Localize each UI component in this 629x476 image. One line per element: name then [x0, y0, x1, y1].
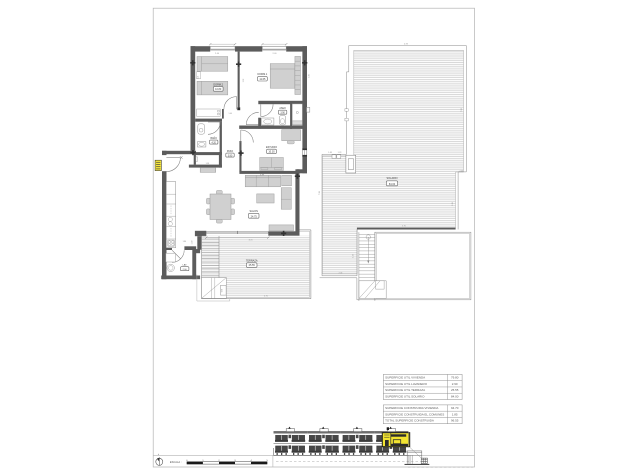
svg-text:TERRAZA: TERRAZA — [246, 259, 258, 262]
svg-text:SUPERFICIE CONSTRUIDA VIVIENDA: SUPERFICIE CONSTRUIDA VIVIENDA — [385, 406, 438, 410]
svg-text:2.90: 2.90 — [452, 382, 458, 386]
svg-text:96.55: 96.55 — [451, 419, 459, 423]
svg-text:SUPERFICIE UTIL LAVADERO: SUPERFICIE UTIL LAVADERO — [385, 382, 428, 386]
svg-text:2.33: 2.33 — [352, 254, 354, 258]
svg-text:3.30: 3.30 — [309, 74, 311, 78]
svg-text:25.55: 25.55 — [451, 388, 459, 392]
svg-text:1.35: 1.35 — [198, 76, 200, 79]
svg-text:3.80: 3.80 — [228, 155, 233, 157]
svg-text:24.75: 24.75 — [251, 215, 258, 218]
svg-text:2.04: 2.04 — [339, 272, 343, 274]
svg-text:SOLARIO: SOLARIO — [386, 177, 397, 180]
svg-text:1.48: 1.48 — [328, 152, 332, 154]
svg-text:0.90: 0.90 — [221, 289, 223, 292]
svg-text:4.75: 4.75 — [264, 296, 268, 298]
svg-text:SUPERFICIE UTIL TERRAZA: SUPERFICIE UTIL TERRAZA — [385, 388, 425, 392]
svg-text:ASEO: ASEO — [279, 107, 286, 110]
svg-text:8.70: 8.70 — [249, 239, 253, 241]
svg-text:1.98: 1.98 — [206, 163, 210, 165]
svg-text:SUPERFICIE UTIL VIVIENDA: SUPERFICIE UTIL VIVIENDA — [385, 376, 425, 380]
svg-text:3.90: 3.90 — [280, 112, 285, 114]
svg-text:ESCALA :: ESCALA : — [170, 460, 182, 464]
svg-text:4.70: 4.70 — [402, 226, 406, 228]
svg-text:7.86: 7.86 — [319, 191, 321, 195]
svg-text:SUPERFICIE CONSTRUIDA EL.COMUN: SUPERFICIE CONSTRUIDA EL.COMUNES — [385, 412, 444, 416]
svg-text:BAÑO: BAÑO — [210, 137, 217, 140]
svg-text:3.95: 3.95 — [452, 202, 454, 206]
svg-text:SALON: SALON — [249, 210, 258, 213]
svg-text:79.80: 79.80 — [451, 376, 459, 380]
svg-text:1.85: 1.85 — [452, 412, 458, 416]
svg-text:DORM.2: DORM.2 — [213, 83, 223, 86]
svg-text:84.00: 84.00 — [451, 394, 459, 398]
svg-text:4.93: 4.93 — [404, 44, 408, 46]
svg-text:84.00: 84.00 — [389, 183, 396, 186]
svg-text:PASO: PASO — [227, 150, 233, 153]
svg-text:10.80: 10.80 — [215, 88, 222, 91]
svg-text:11.65: 11.65 — [259, 78, 266, 81]
svg-text:2.02: 2.02 — [243, 79, 245, 83]
svg-text:94.70: 94.70 — [451, 406, 459, 410]
svg-text:ESTUDIO: ESTUDIO — [266, 146, 277, 149]
svg-text:LAV.: LAV. — [183, 264, 188, 267]
svg-text:25.55: 25.55 — [249, 264, 256, 267]
svg-text:10.30: 10.30 — [268, 151, 275, 154]
svg-text:7.00: 7.00 — [461, 108, 463, 112]
svg-text:4.20: 4.20 — [211, 142, 216, 144]
svg-text:SUPERFICIE UTIL SOLARIO: SUPERFICIE UTIL SOLARIO — [385, 394, 425, 398]
svg-text:1.40: 1.40 — [228, 113, 232, 115]
svg-text:TOTAL SUPERFICIE CONSTRUIDA: TOTAL SUPERFICIE CONSTRUIDA — [385, 419, 434, 423]
svg-text:4.98: 4.98 — [260, 175, 264, 177]
svg-text:1.86: 1.86 — [183, 241, 187, 243]
svg-text:1.00: 1.00 — [192, 241, 194, 245]
svg-text:2.56: 2.56 — [459, 170, 463, 172]
svg-text:DORM.1: DORM.1 — [258, 73, 268, 76]
svg-text:1.23: 1.23 — [338, 152, 342, 154]
